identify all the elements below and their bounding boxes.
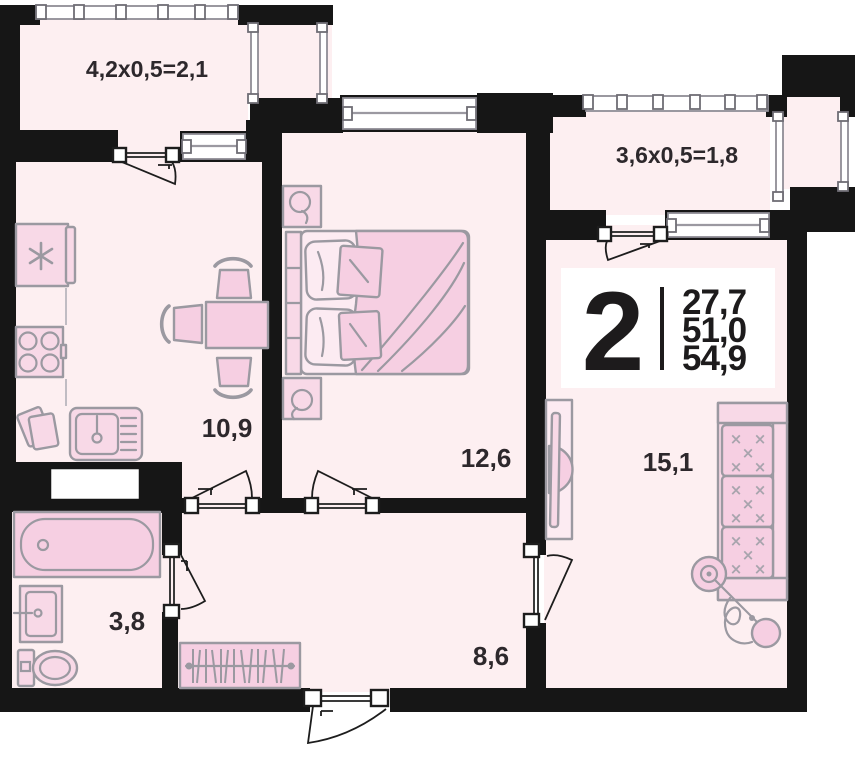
entrance-door (304, 690, 388, 743)
kitchen-area-label: 10,9 (202, 413, 253, 443)
svg-text:×: × (742, 495, 755, 513)
living-room-window (665, 210, 772, 240)
balcony-left-glazing (36, 5, 238, 19)
fridge (16, 224, 75, 286)
double-bed (286, 231, 469, 374)
bathroom-area-label: 3,8 (109, 606, 145, 636)
svg-text:×: × (730, 458, 743, 476)
sofa: ××××× ××××× ××××× (718, 403, 787, 600)
rooms-count: 2 (582, 269, 644, 394)
sofa-armrest-bottom (718, 578, 787, 600)
svg-text:×: × (730, 481, 743, 499)
kitchen-sink (70, 408, 142, 460)
svg-text:×: × (730, 509, 743, 527)
hallway-furniture (180, 643, 300, 688)
stove (16, 327, 66, 377)
wardrobe (180, 643, 300, 688)
svg-text:×: × (730, 430, 743, 448)
svg-text:×: × (742, 444, 755, 462)
svg-text:×: × (742, 546, 755, 564)
tv-stand (546, 400, 573, 539)
total-area-value: 54,9 (682, 339, 747, 378)
bedroom-area-label: 12,6 (461, 443, 512, 473)
cushion-bottom (339, 311, 381, 360)
svg-text:×: × (754, 509, 767, 527)
balcony-right-glazing (583, 95, 768, 111)
kitchen-window (180, 131, 248, 162)
corner-balcony-right-floor (783, 95, 843, 189)
living-room-area-label: 15,1 (643, 447, 694, 477)
hallway-area-label: 8,6 (473, 641, 509, 671)
svg-text:×: × (730, 532, 743, 550)
sofa-armrest-top (718, 403, 787, 423)
sofa-backrest (773, 421, 787, 579)
svg-text:×: × (754, 560, 767, 578)
tv (550, 413, 560, 527)
card-divider (660, 287, 664, 370)
nightstand-top (283, 186, 321, 227)
svg-text:×: × (754, 532, 767, 550)
dining-table (206, 302, 268, 348)
bathtub (14, 512, 160, 577)
balcony-left-label: 4,2x0,5=2,1 (86, 56, 208, 82)
balcony-right-label: 3,6x0,5=1,8 (616, 142, 738, 168)
svg-text:×: × (730, 560, 743, 578)
svg-text:×: × (754, 481, 767, 499)
floor-plan-drawing: ××××× ××××× ××××× (0, 0, 855, 757)
toilet (18, 650, 77, 686)
vent-shaft (50, 468, 140, 500)
apartment-info-card: 2 27,7 51,0 54,9 (561, 268, 775, 394)
bedroom-window (340, 95, 479, 132)
floor-plan: ××××× ××××× ××××× (0, 0, 855, 757)
bathroom-sink (14, 586, 62, 642)
nightstand-bottom (283, 378, 321, 419)
svg-text:×: × (754, 458, 767, 476)
svg-text:×: × (754, 430, 767, 448)
